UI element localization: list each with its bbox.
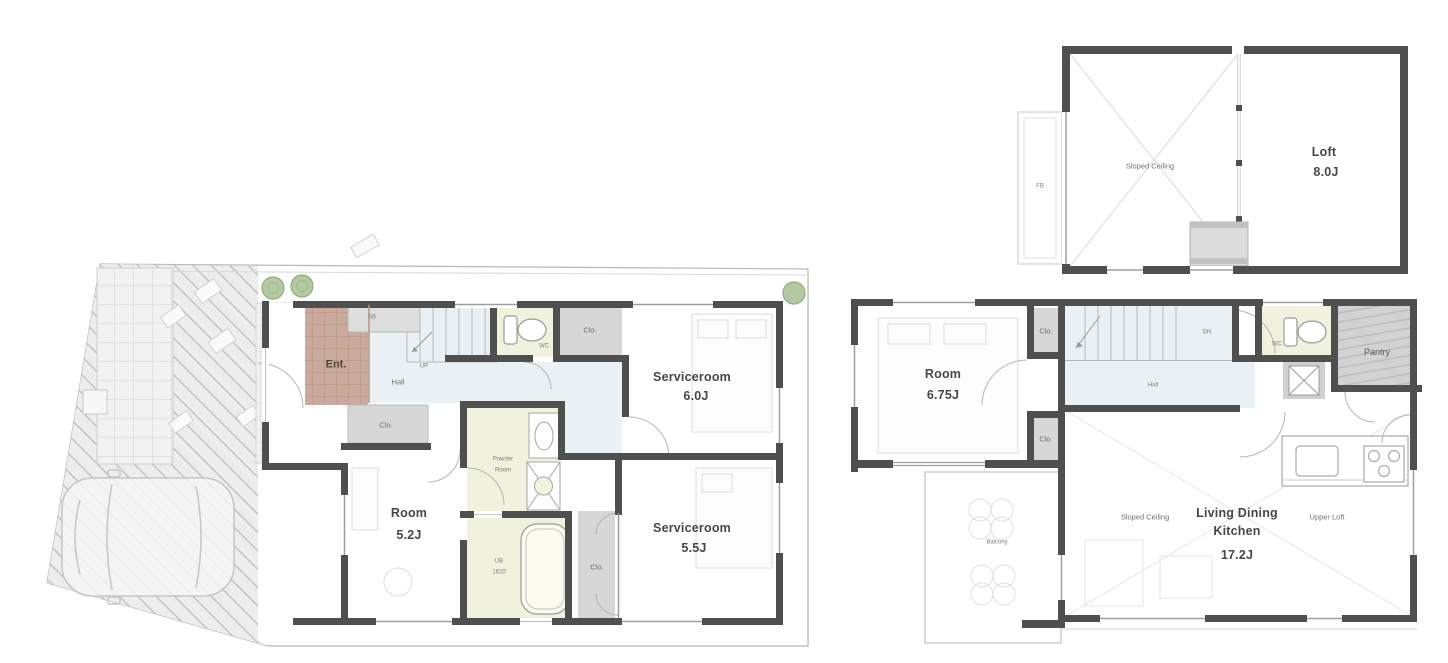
washing-machine-icon bbox=[527, 462, 560, 510]
ldk-label-2: Kitchen bbox=[1213, 524, 1260, 538]
room-1f-area: 5.2J bbox=[396, 528, 421, 542]
room-2f-name: Room bbox=[925, 367, 961, 381]
balcony-label: Balcony bbox=[986, 540, 1007, 547]
stairs-floor-2f bbox=[1065, 303, 1238, 360]
kitchen-counter bbox=[1282, 436, 1408, 486]
room-1f-name: Room bbox=[391, 506, 427, 520]
balcony bbox=[925, 472, 1061, 643]
powder-room-label-2: Room bbox=[495, 468, 511, 475]
sloped-ceiling-label-loft: Sloped Ceiling bbox=[1126, 163, 1174, 172]
toilet-icon-2f bbox=[1284, 318, 1326, 346]
washbasin-icon bbox=[529, 413, 559, 458]
loft-area: 8.0J bbox=[1313, 165, 1338, 179]
storage-box-icon bbox=[1283, 362, 1325, 399]
bath-label-2: 1620 bbox=[492, 570, 505, 577]
stove-icon bbox=[1364, 446, 1404, 482]
toilet-icon-1f bbox=[504, 316, 546, 344]
upper-loft-label: Upper Loft bbox=[1309, 514, 1344, 523]
closet-mid-label: Clo. bbox=[379, 422, 392, 431]
stone-paving bbox=[97, 268, 173, 464]
loft-hatch-box bbox=[1190, 222, 1248, 266]
room-2f-area: 6.75J bbox=[927, 388, 959, 402]
bathtub-icon bbox=[521, 524, 569, 614]
stairs-down-label: DN bbox=[1203, 330, 1212, 337]
serviceroom-small-name: Serviceroom bbox=[653, 521, 731, 535]
car-icon bbox=[62, 470, 234, 604]
sink-icon bbox=[1296, 446, 1338, 476]
hall-label-1f: Hall bbox=[392, 379, 405, 388]
serviceroom-large-name: Serviceroom bbox=[653, 370, 731, 384]
ldk-area: 17.2J bbox=[1221, 548, 1253, 562]
closet-top-label: Clo. bbox=[583, 327, 596, 336]
wc-label-2f: WC bbox=[1272, 342, 1282, 349]
pantry-label: Pantry bbox=[1364, 347, 1390, 357]
shoe-cabinet-label: SB bbox=[368, 315, 376, 322]
bath-label-1: UB bbox=[495, 559, 503, 566]
powder-room-label-1: Powder bbox=[493, 457, 513, 464]
loft-window-label: FB bbox=[1036, 184, 1044, 191]
wc-label-1f: WC bbox=[539, 344, 549, 351]
loft-plan bbox=[1018, 46, 1408, 274]
closet-bath-label: Clo. bbox=[590, 564, 603, 573]
entrance-label: Ent. bbox=[326, 359, 347, 372]
shoe-cabinet bbox=[348, 306, 420, 332]
closet-bottom-label-2f: Clo. bbox=[1039, 436, 1052, 445]
bed-icon-2f bbox=[878, 318, 1018, 453]
hall-floor-2f bbox=[1065, 360, 1255, 408]
floor-plan-page: Ent. Hall UP SB WC Clo. Clo. Clo. Servic… bbox=[0, 0, 1448, 663]
sloped-ceiling-label-2f: Sloped Ceiling bbox=[1121, 514, 1169, 523]
closet-top-label-2f: Clo. bbox=[1039, 328, 1052, 337]
serviceroom-small-area: 5.5J bbox=[681, 541, 706, 555]
floor-plan-drawing bbox=[0, 0, 1448, 663]
loft-name: Loft bbox=[1312, 145, 1336, 159]
ldk-label-1: Living Dining bbox=[1196, 506, 1278, 520]
stairs-up-label: UP bbox=[420, 364, 428, 371]
serviceroom-large-area: 6.0J bbox=[683, 389, 708, 403]
hall-label-2f: Hall bbox=[1148, 383, 1158, 390]
